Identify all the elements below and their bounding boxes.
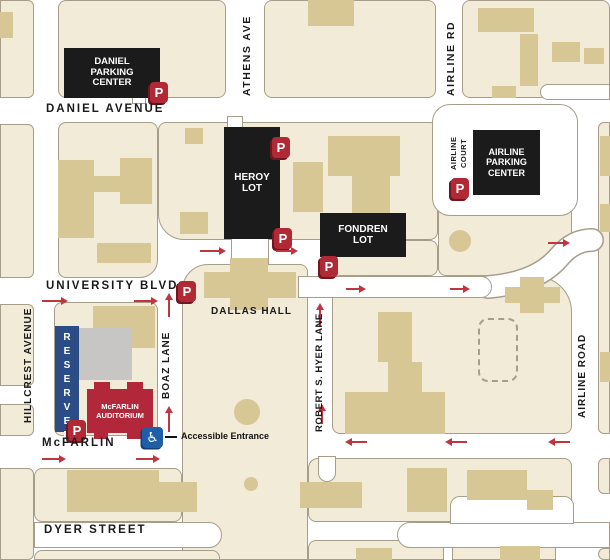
- accessible-entrance-pointer-line: [165, 436, 177, 438]
- building: [584, 48, 604, 64]
- street-label-robert-s-hyer-lane: ROBERT S. HYER LANE: [314, 282, 330, 464]
- street-surface: [450, 496, 574, 524]
- street-label-university-blvd: UNIVERSITY BLVD: [46, 280, 178, 292]
- tree: [234, 399, 260, 425]
- mcfarlin-auditorium-label-line1: McFARLIN: [101, 402, 139, 411]
- parking-lot-label: AIRLINE: [489, 147, 525, 157]
- building: [120, 158, 152, 204]
- arrow-shaft: [134, 300, 152, 302]
- one-way-arrow-right: [450, 285, 470, 293]
- parking-p-sign: P: [274, 228, 292, 249]
- parking-lot-daniel-parking-center: DANIELPARKINGCENTER: [64, 48, 160, 98]
- one-way-arrow-right: [42, 297, 68, 305]
- building: [67, 482, 197, 512]
- parking-lot-label: HEROY: [234, 172, 270, 184]
- one-way-arrow-left: [345, 438, 367, 446]
- campus-map: RESERVED McFARLIN AUDITORIUM ♿ Accessibl…: [0, 0, 610, 560]
- street-label-daniel-avenue: DANIEL AVENUE: [46, 103, 164, 115]
- arrow-head: [563, 239, 570, 247]
- one-way-arrow-up: [165, 293, 173, 317]
- arrow-head: [151, 297, 158, 305]
- parking-lot-label: LOT: [242, 183, 262, 195]
- arrow-shaft: [168, 299, 170, 317]
- arrow-head: [291, 247, 298, 255]
- building: [478, 8, 534, 32]
- parking-lot-label: FONDREN: [338, 224, 387, 236]
- one-way-arrow-right: [42, 455, 66, 463]
- reserved-lot: RESERVED: [55, 326, 79, 432]
- building: [345, 392, 445, 434]
- building: [600, 204, 610, 232]
- parking-lot-label: CENTER: [92, 78, 131, 89]
- arrow-shaft: [200, 250, 220, 252]
- accessible-entrance-label: Accessible Entrance: [181, 431, 269, 441]
- arrow-head: [463, 285, 470, 293]
- building: [407, 468, 447, 512]
- arrow-shaft: [136, 458, 154, 460]
- street-label-dyer-street: DYER STREET: [44, 524, 147, 536]
- building: [308, 0, 354, 26]
- arrow-head: [219, 247, 226, 255]
- building: [97, 243, 151, 263]
- parking-p-sign: P: [178, 281, 196, 302]
- tree: [449, 230, 471, 252]
- arrow-shaft: [42, 300, 62, 302]
- building: [180, 212, 208, 234]
- parking-lot-label: PARKING: [486, 157, 527, 167]
- building: [58, 160, 94, 238]
- building-future-dashed: [478, 318, 518, 382]
- street-surface: [540, 84, 610, 100]
- mcfarlin-auditorium-label-line2: AUDITORIUM: [96, 411, 144, 420]
- street-label-athens-ave: ATHENS AVE: [241, 12, 257, 100]
- street-surface: [397, 522, 610, 548]
- wheelchair-icon: ♿: [146, 429, 159, 445]
- arrow-shaft: [42, 458, 60, 460]
- mcfarlin-auditorium: McFARLIN AUDITORIUM: [87, 389, 153, 433]
- building: [293, 162, 323, 212]
- arrow-shaft: [554, 441, 570, 443]
- building: [492, 86, 516, 98]
- building: [0, 12, 13, 38]
- street-label-mcfarlin: McFARLIN: [42, 437, 116, 449]
- building: [185, 128, 203, 144]
- building: [600, 136, 610, 176]
- arrow-shaft: [346, 288, 360, 290]
- arrow-head: [153, 455, 160, 463]
- building: [505, 287, 560, 303]
- parking-p-sign: P: [272, 137, 290, 158]
- arrow-head: [359, 285, 366, 293]
- building: [300, 482, 362, 508]
- arrow-shaft: [351, 441, 367, 443]
- one-way-arrow-left: [445, 438, 467, 446]
- building: [500, 546, 540, 560]
- building: [527, 490, 553, 510]
- parking-lot-fondren-lot: FONDRENLOT: [320, 213, 406, 257]
- one-way-arrow-right: [136, 455, 160, 463]
- building: [467, 470, 527, 500]
- building: [92, 176, 122, 192]
- parking-p-sign: P: [150, 82, 168, 103]
- building: [552, 42, 580, 62]
- one-way-arrow-right: [276, 247, 298, 255]
- arrow-head: [548, 438, 555, 446]
- parking-lot-airline-parking-center: AIRLINEPARKINGCENTER: [473, 130, 540, 195]
- arrow-shaft: [276, 250, 292, 252]
- parking-p-sign: P: [320, 256, 338, 277]
- arrow-shaft: [451, 441, 467, 443]
- street-label-airline-rd: AIRLINE RD: [445, 14, 461, 102]
- one-way-arrow-left: [548, 438, 570, 446]
- building: [600, 352, 610, 382]
- arrow-head: [61, 297, 68, 305]
- building: [230, 258, 268, 310]
- parking-lot-label: DANIEL: [94, 57, 129, 68]
- building: [388, 362, 422, 394]
- building: [328, 136, 400, 176]
- arrow-head: [445, 438, 452, 446]
- arrow-head: [345, 438, 352, 446]
- building: [520, 34, 538, 86]
- street-label-dallas-hall: DALLAS HALL: [211, 306, 292, 317]
- arrow-head: [165, 293, 173, 300]
- arrow-shaft: [168, 412, 170, 432]
- street-label-airline-court-line2: COURT: [459, 126, 475, 180]
- parking-lot-label: CENTER: [488, 168, 525, 178]
- arrow-head: [59, 455, 66, 463]
- parking-lot-label: LOT: [353, 235, 373, 247]
- building: [356, 548, 392, 560]
- one-way-arrow-right: [346, 285, 366, 293]
- one-way-arrow-right: [134, 297, 158, 305]
- one-way-arrow-right: [548, 239, 570, 247]
- building: [378, 312, 412, 362]
- arrow-shaft: [548, 242, 564, 244]
- tree: [244, 477, 258, 491]
- building-gray: [78, 328, 132, 380]
- one-way-arrow-right: [200, 247, 226, 255]
- street-label-hillcrest-avenue: HILLCREST AVENUE: [23, 294, 39, 436]
- accessible-entrance-icon: ♿: [142, 427, 163, 448]
- parking-p-sign: P: [451, 178, 469, 199]
- street-label-boaz-lane: BOAZ LANE: [161, 316, 177, 414]
- street-label-airline-road: AIRLINE ROAD: [577, 314, 593, 438]
- arrow-shaft: [450, 288, 464, 290]
